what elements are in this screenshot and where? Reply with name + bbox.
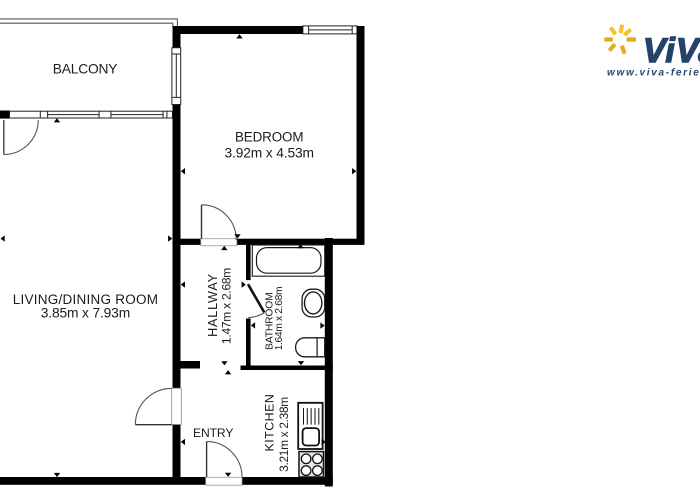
svg-text:ViVa: ViVa [643, 32, 700, 70]
svg-text:3.21m x 2.38m: 3.21m x 2.38m [277, 397, 291, 472]
svg-text:HALLWAY: HALLWAY [206, 273, 220, 337]
svg-text:3.92m x 4.53m: 3.92m x 4.53m [225, 145, 314, 160]
svg-text:1.47m x 2.68m: 1.47m x 2.68m [219, 268, 233, 344]
svg-text:BALCONY: BALCONY [53, 62, 118, 77]
svg-text:www.viva-ferienwohnung: www.viva-ferienwohnung [607, 68, 700, 79]
svg-text:ENTRY: ENTRY [193, 426, 233, 440]
svg-text:BEDROOM: BEDROOM [235, 130, 304, 145]
svg-text:1.64m x 2.68m: 1.64m x 2.68m [274, 287, 285, 351]
svg-text:KITCHEN: KITCHEN [263, 394, 277, 452]
svg-text:3.85m x 7.93m: 3.85m x 7.93m [41, 305, 130, 320]
